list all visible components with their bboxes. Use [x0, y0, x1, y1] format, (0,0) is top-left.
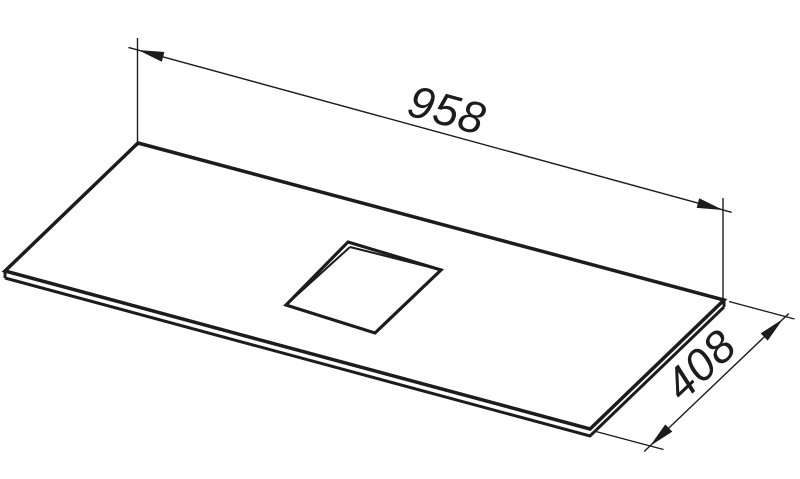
arrowhead-right-icon [697, 198, 723, 210]
dimension-label-length: 958 [403, 75, 492, 145]
extension-line-top [729, 302, 795, 320]
extension-line-bottom [594, 431, 664, 450]
technical-drawing-canvas: 958 408 [0, 0, 800, 479]
drawing-sheet: 958 408 [0, 0, 800, 479]
arrowhead-left-icon [138, 50, 164, 62]
